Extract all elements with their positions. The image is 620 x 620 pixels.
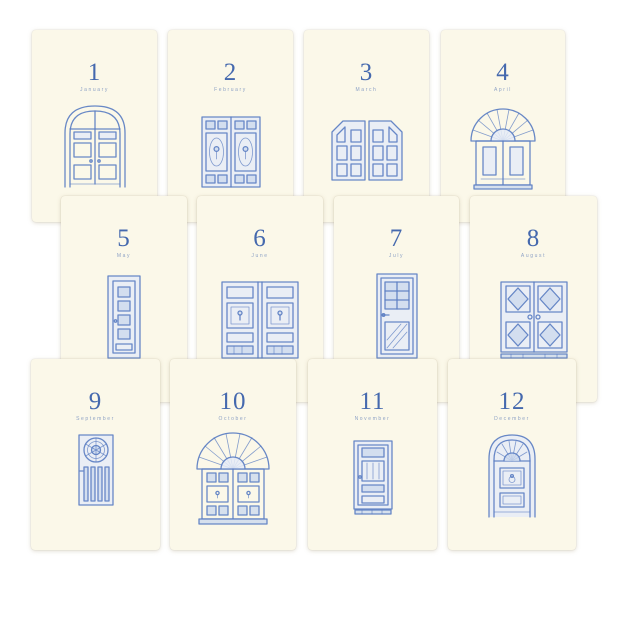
card-month-label: July — [389, 254, 404, 259]
card-number: 6 — [253, 226, 267, 251]
six-pane-window-door-illustration — [375, 272, 419, 360]
card-month-label: November — [355, 417, 391, 422]
card-month-label: December — [494, 417, 530, 422]
card-number: 1 — [88, 60, 102, 85]
calendar-card-april: 4 April — [441, 30, 565, 222]
card-month-label: March — [356, 88, 378, 93]
card-number: 9 — [89, 389, 103, 414]
card-number: 5 — [117, 226, 131, 251]
card-month-label: June — [251, 254, 268, 259]
card-month-label: October — [219, 417, 248, 422]
card-number: 8 — [527, 226, 541, 251]
arched-double-door-illustration — [62, 103, 128, 189]
calendar-card-november: 11 November — [308, 359, 437, 550]
fan-arch-double-door-illustration — [193, 431, 273, 525]
rosette-slat-door-illustration — [77, 433, 115, 507]
arched-keyhole-door-illustration — [486, 431, 538, 521]
single-panel-door-illustration — [352, 439, 394, 515]
sunburst-fanlight-door-illustration — [464, 107, 542, 191]
card-month-label: April — [494, 88, 512, 93]
six-panel-double-door-illustration — [329, 118, 405, 182]
calendar-card-october: 10 October — [170, 359, 296, 550]
card-month-label: September — [76, 417, 115, 422]
card-month-label: February — [214, 88, 247, 93]
wide-knocker-double-door-illustration — [220, 280, 300, 360]
calendar-cards-collage: 1 January 2 February — [0, 0, 620, 620]
card-number: 11 — [359, 389, 385, 414]
ornate-panel-double-door-illustration — [200, 115, 262, 189]
card-number: 10 — [220, 389, 247, 414]
card-number: 2 — [224, 60, 238, 85]
calendar-card-january: 1 January — [32, 30, 157, 222]
card-month-label: May — [117, 254, 131, 259]
calendar-card-february: 2 February — [168, 30, 293, 222]
card-number: 4 — [496, 60, 510, 85]
diamond-panel-double-door-illustration — [499, 280, 569, 360]
calendar-card-march: 3 March — [304, 30, 429, 222]
card-month-label: August — [521, 254, 546, 259]
card-number: 12 — [499, 389, 526, 414]
narrow-four-window-door-illustration — [106, 274, 142, 360]
calendar-card-december: 12 December — [448, 359, 576, 550]
calendar-card-september: 9 September — [31, 359, 160, 550]
card-number: 3 — [360, 60, 374, 85]
card-month-label: January — [80, 88, 109, 93]
card-number: 7 — [390, 226, 404, 251]
